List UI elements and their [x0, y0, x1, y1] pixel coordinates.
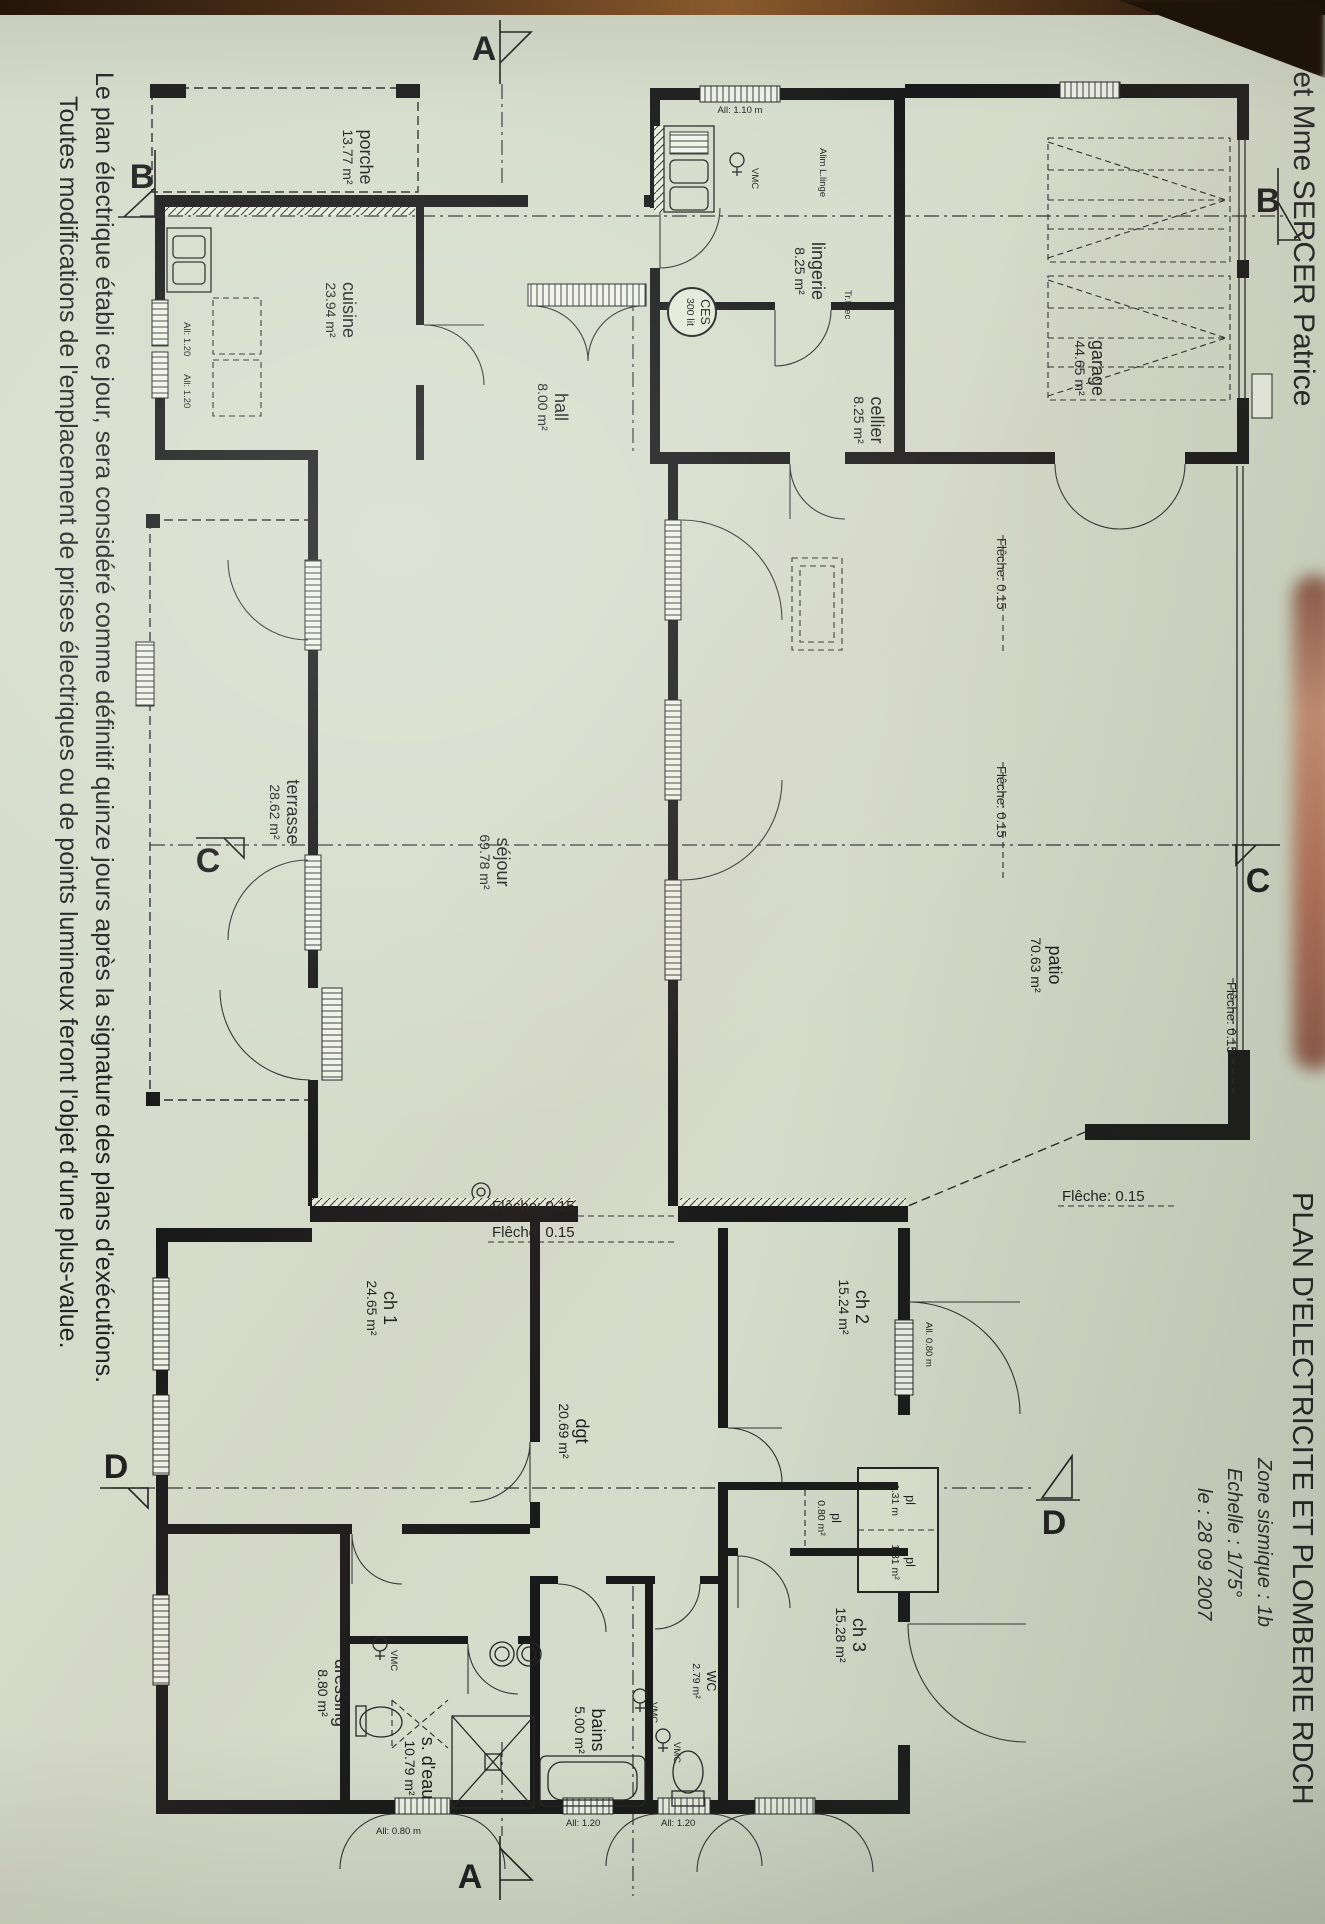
- room-label-pl131b: pl: [903, 1557, 917, 1567]
- section-letter-a-top: A: [472, 30, 497, 68]
- room-area-ch1: 24.65 m²: [364, 1280, 380, 1336]
- allege-label-ch2: All. 0.80 m: [923, 1322, 934, 1367]
- fleche-label-1: Flêche: 0.15: [994, 538, 1009, 610]
- room-area-dressing: 8.80 m²: [315, 1669, 331, 1717]
- room-area-ch2: 15.24 m²: [836, 1279, 852, 1335]
- room-label-dgt: dgt: [572, 1418, 592, 1443]
- tr-elec-label: Tr.Elec: [842, 290, 853, 319]
- allege-label-bains: All: 1.20: [566, 1818, 600, 1829]
- room-label-bains: bains: [588, 1708, 608, 1751]
- sejour-terrasse-walls: [136, 460, 782, 1206]
- room-area-terrasse: 28.62 m²: [267, 784, 283, 840]
- room-label-hall: hall: [551, 393, 571, 421]
- room-area-pl080: 0.80 m²: [815, 1500, 827, 1536]
- allege-label-wc: All: 1.20: [661, 1818, 695, 1829]
- room-area-bains: 5.00 m²: [572, 1706, 588, 1754]
- room-label-ch2: ch 2: [852, 1290, 872, 1324]
- allege-label-cuisine-2: All: 1.20: [181, 374, 192, 408]
- ces-label-line2: 300 lit: [684, 298, 696, 326]
- room-area-pl131a: 1.31 m: [889, 1484, 901, 1516]
- allege-label-lingerie: All: 1.10 m: [718, 105, 763, 116]
- section-letter-a-bottom: A: [458, 1858, 483, 1896]
- section-lines: [112, 84, 1285, 1896]
- vmc-label-bains: VMC: [671, 1742, 682, 1763]
- title-block-date: le : 28 09 2007: [1193, 1488, 1215, 1621]
- room-label-ch3: ch 3: [849, 1618, 869, 1652]
- room-label-wc: WC: [704, 1671, 718, 1692]
- fleche-label-4: Flêche: 0.15: [1062, 1188, 1145, 1205]
- allege-label-cuisine-1: All: 1.20: [181, 322, 192, 356]
- title-block-echelle: Echelle : 1/75°: [1223, 1468, 1245, 1597]
- room-label-terrasse: terrasse: [283, 779, 303, 844]
- room-label-garage: garage: [1088, 340, 1108, 396]
- room-area-cellier: 8.25 m²: [851, 396, 867, 444]
- owner-name: M et Mme SERCER Patrice: [1287, 38, 1320, 406]
- room-label-pl131a: pl: [903, 1495, 917, 1505]
- ces-label-line1: CES: [698, 299, 712, 325]
- room-area-sejour: 69.78 m²: [477, 834, 493, 890]
- fleche-label-2: Flêche: 0.15: [994, 766, 1009, 838]
- room-label-lingerie: lingerie: [808, 242, 828, 300]
- fleche-label-5: Flêche: 0.15: [492, 1198, 575, 1215]
- room-area-sdeau: 10.79 m²: [402, 1740, 418, 1796]
- room-label-dressing: dressing: [331, 1659, 351, 1727]
- patio-walls: [472, 466, 1250, 1242]
- section-letter-d-right: D: [1042, 1504, 1067, 1542]
- section-letter-d-left: D: [104, 1448, 129, 1486]
- section-letter-b-left: B: [130, 158, 155, 196]
- room-area-porche: 13.77 m²: [340, 129, 356, 185]
- section-letter-c-left: C: [196, 842, 221, 880]
- room-label-porche: porche: [356, 129, 376, 184]
- room-label-patio: patio: [1045, 945, 1065, 984]
- room-area-wc: 2.79 m²: [690, 1663, 702, 1699]
- room-area-lingerie: 8.25 m²: [792, 247, 808, 295]
- room-label-cellier: cellier: [867, 396, 887, 443]
- room-area-garage: 44.65 m²: [1072, 340, 1088, 396]
- room-area-cuisine: 23.94 m²: [323, 282, 339, 338]
- room-label-pl080: pl: [829, 1513, 843, 1523]
- room-area-dgt: 20.69 m²: [556, 1403, 572, 1459]
- page-title: PLAN D'ELECTRICITE ET PLOMBERIE RDCH: [1286, 1192, 1318, 1805]
- room-labels: porche 13.77 m² cuisine 23.94 m² hall 8.…: [267, 129, 1108, 1799]
- floor-plan-drawing: A B B C C D D A M et Mme SERCER Patrice …: [0, 0, 1325, 1924]
- room-area-ch3: 15.28 m²: [833, 1607, 849, 1663]
- floor-plan-photo: A B B C C D D A M et Mme SERCER Patrice …: [0, 0, 1325, 1924]
- title-block-zone: Zone sismique : 1b: [1253, 1457, 1275, 1627]
- room-label-sejour: séjour: [493, 837, 513, 886]
- vmc-label-lingerie: VMC: [749, 168, 760, 189]
- section-letter-b-right: B: [1256, 182, 1281, 220]
- finger-blur: [1293, 575, 1325, 1070]
- night-wing-walls: [153, 1198, 1026, 1872]
- room-label-sdeau: s. d'eau: [418, 1737, 438, 1799]
- room-area-hall: 8.00 m²: [535, 383, 551, 431]
- room-label-cuisine: cuisine: [339, 282, 359, 338]
- note-line-2: Toutes modifications de l'emplacement de…: [54, 96, 82, 1349]
- vmc-label-dressing: VMC: [388, 1650, 399, 1671]
- room-label-ch1: ch 1: [380, 1291, 400, 1325]
- note-line-1: Le plan électrique établi ce jour, sera …: [90, 72, 118, 1383]
- alim-linge-label: Alim L.linge: [817, 148, 828, 197]
- room-area-pl131b: 1.31 m²: [889, 1544, 901, 1580]
- allege-label-sdeau: All: 0.80 m: [376, 1826, 421, 1837]
- fleche-label-3: Flêche: 0.15: [1224, 982, 1239, 1054]
- vmc-label-wc: VMC: [648, 1702, 659, 1723]
- fleche-label-6: Flêche: 0.15: [492, 1224, 575, 1241]
- room-area-patio: 70.63 m²: [1028, 937, 1044, 993]
- section-letter-c-right: C: [1246, 862, 1271, 900]
